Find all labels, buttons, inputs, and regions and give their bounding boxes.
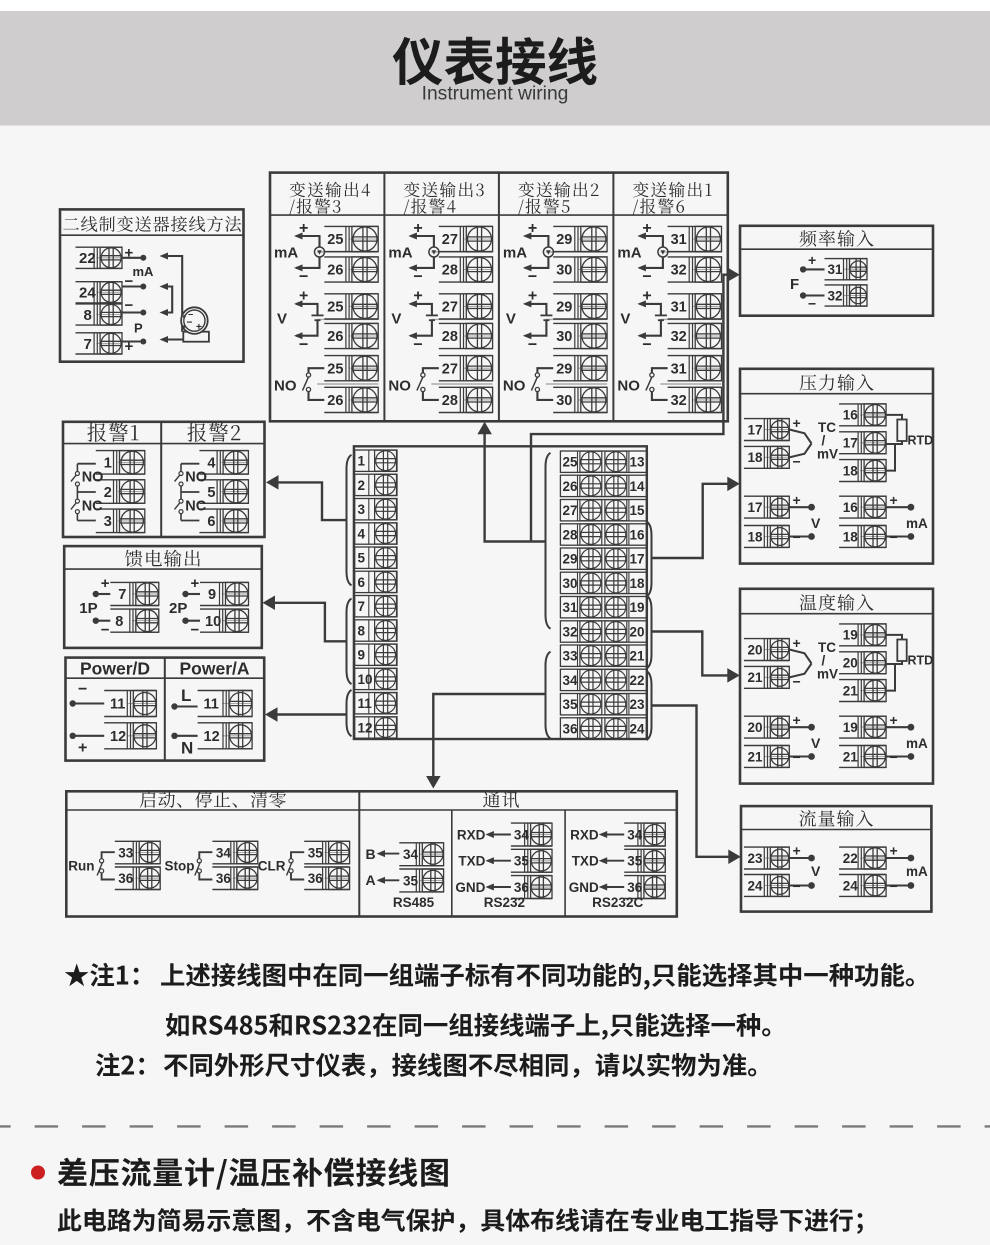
svg-text:B: B [366, 846, 376, 862]
svg-text:Power/A: Power/A [179, 659, 249, 679]
svg-text:mA: mA [133, 264, 155, 279]
svg-text:21: 21 [629, 649, 645, 664]
svg-text:−: − [793, 453, 801, 469]
svg-text:24: 24 [843, 878, 859, 893]
svg-text:11: 11 [204, 697, 219, 713]
svg-text:25: 25 [327, 300, 343, 316]
svg-text:28: 28 [442, 393, 458, 409]
svg-text:34: 34 [563, 673, 579, 688]
svg-text:24: 24 [629, 721, 645, 736]
svg-text:NO: NO [185, 470, 207, 486]
svg-text:2: 2 [358, 478, 366, 493]
svg-text:NO: NO [274, 378, 297, 395]
svg-text:31: 31 [671, 300, 687, 316]
svg-text:5: 5 [207, 485, 215, 501]
svg-text:L: L [181, 686, 191, 705]
svg-text:29: 29 [556, 232, 572, 248]
svg-text:19: 19 [843, 628, 858, 643]
svg-text:−: − [890, 749, 898, 765]
svg-text:5: 5 [358, 551, 366, 566]
svg-text:18: 18 [748, 450, 764, 465]
svg-text:29: 29 [563, 552, 578, 567]
svg-text:14: 14 [629, 479, 645, 494]
svg-text:−: − [890, 529, 898, 545]
svg-text:10: 10 [205, 614, 221, 630]
svg-text:13: 13 [629, 455, 645, 470]
svg-text:Power/D: Power/D [80, 659, 150, 679]
svg-text:32: 32 [828, 288, 843, 303]
svg-text:25: 25 [327, 361, 343, 377]
svg-text:34: 34 [514, 827, 530, 842]
svg-text:4: 4 [358, 526, 366, 541]
svg-text:mA: mA [906, 736, 928, 751]
svg-text:7: 7 [358, 599, 366, 614]
svg-text:−: − [642, 269, 651, 286]
svg-text:−: − [78, 681, 87, 698]
svg-text:−: − [299, 269, 308, 286]
svg-text:V: V [506, 311, 516, 328]
svg-text:+: + [78, 740, 87, 757]
svg-text:31: 31 [671, 232, 687, 248]
svg-text:mA: mA [906, 864, 928, 879]
svg-text:35: 35 [514, 854, 530, 869]
svg-text:1: 1 [104, 456, 112, 472]
svg-text:19: 19 [629, 600, 644, 615]
svg-text:mA: mA [503, 245, 527, 262]
svg-text:−: − [793, 749, 801, 765]
svg-text:V: V [391, 311, 401, 328]
svg-text:26: 26 [563, 479, 579, 494]
svg-text:22: 22 [629, 673, 644, 688]
svg-text:1: 1 [358, 454, 366, 469]
svg-text:−: − [793, 673, 801, 689]
svg-text:21: 21 [748, 749, 764, 764]
svg-text:20: 20 [748, 642, 763, 657]
svg-text:26: 26 [327, 263, 343, 279]
svg-text:18: 18 [843, 529, 859, 544]
svg-text:10: 10 [358, 672, 373, 687]
svg-text:18: 18 [629, 576, 645, 591]
svg-text:4: 4 [207, 456, 215, 472]
svg-text:+: + [793, 415, 801, 431]
svg-text:6: 6 [358, 575, 366, 590]
svg-text:mA: mA [274, 245, 298, 262]
svg-text:31: 31 [563, 600, 579, 615]
svg-text:−: − [191, 622, 200, 639]
svg-text:30: 30 [563, 576, 578, 591]
svg-text:20: 20 [748, 720, 763, 735]
svg-text:30: 30 [556, 329, 572, 345]
svg-text:18: 18 [748, 529, 764, 544]
svg-text:V: V [811, 863, 821, 879]
svg-text:15: 15 [629, 503, 645, 518]
svg-text:V: V [811, 515, 821, 531]
svg-text:27: 27 [442, 361, 458, 377]
svg-text:−: − [299, 337, 308, 354]
svg-text:33: 33 [118, 845, 134, 860]
svg-text:−: − [793, 529, 801, 545]
svg-text:36: 36 [118, 871, 134, 886]
svg-text:RS485: RS485 [393, 895, 435, 910]
svg-text:−: − [413, 337, 422, 354]
svg-text:20: 20 [629, 624, 644, 639]
svg-text:−: − [101, 622, 110, 639]
svg-text:+: + [196, 322, 202, 333]
svg-text:17: 17 [748, 422, 763, 437]
svg-text:11: 11 [110, 697, 125, 713]
svg-text:8: 8 [84, 307, 92, 324]
svg-text:+: + [793, 712, 801, 728]
svg-text:3: 3 [358, 502, 366, 517]
svg-text:RXD: RXD [570, 828, 599, 843]
svg-text:18: 18 [843, 463, 859, 478]
svg-text:36: 36 [627, 880, 643, 895]
svg-text:2: 2 [104, 485, 112, 501]
svg-text:RTD: RTD [908, 433, 934, 447]
svg-text:7: 7 [84, 336, 92, 353]
svg-text:21: 21 [748, 670, 764, 685]
svg-text:+: + [890, 843, 898, 859]
svg-text:−: − [642, 337, 651, 354]
svg-text:2P: 2P [169, 600, 187, 617]
svg-text:mA: mA [388, 245, 412, 262]
svg-text:27: 27 [563, 503, 578, 518]
svg-text:35: 35 [627, 854, 643, 869]
svg-text:22: 22 [79, 250, 96, 267]
svg-text:NO: NO [82, 470, 104, 486]
svg-text:33: 33 [563, 649, 579, 664]
svg-text:12: 12 [110, 729, 126, 745]
svg-text:7: 7 [118, 587, 126, 603]
svg-text:24: 24 [748, 878, 764, 893]
svg-text:V: V [620, 311, 630, 328]
svg-text:Stop: Stop [165, 859, 195, 874]
svg-text:V: V [811, 735, 821, 751]
svg-text:9: 9 [208, 587, 216, 603]
svg-text:RS232C: RS232C [592, 895, 643, 910]
svg-text:N: N [181, 739, 193, 758]
svg-text:11: 11 [358, 696, 373, 711]
svg-text:36: 36 [563, 721, 579, 736]
svg-text:32: 32 [671, 263, 687, 279]
svg-text:F: F [790, 276, 799, 293]
svg-text:−: − [808, 296, 816, 312]
svg-text:22: 22 [843, 851, 858, 866]
svg-text:TXD: TXD [458, 854, 485, 869]
svg-text:+: + [808, 252, 816, 268]
svg-text:23: 23 [748, 851, 764, 866]
svg-text:25: 25 [327, 232, 343, 248]
svg-text:12: 12 [358, 720, 373, 735]
svg-text:12: 12 [204, 729, 220, 745]
svg-text:−: − [890, 878, 898, 894]
svg-text:25: 25 [563, 455, 579, 470]
svg-text:TXD: TXD [572, 854, 599, 869]
svg-text:30: 30 [556, 393, 572, 409]
svg-text:36: 36 [308, 871, 324, 886]
svg-text:+: + [793, 843, 801, 859]
svg-text:−: − [413, 269, 422, 286]
svg-text:+: + [191, 575, 200, 592]
svg-text:16: 16 [629, 527, 645, 542]
svg-text:35: 35 [403, 873, 419, 888]
svg-text:34: 34 [403, 847, 419, 862]
svg-text:NO: NO [503, 378, 526, 395]
svg-text:31: 31 [828, 262, 844, 277]
svg-text:mV: mV [817, 666, 838, 681]
svg-text:34: 34 [216, 845, 232, 860]
svg-text:6: 6 [207, 514, 215, 530]
svg-text:32: 32 [671, 329, 687, 345]
svg-text:mV: mV [817, 446, 838, 461]
svg-text:mA: mA [617, 245, 641, 262]
svg-text:27: 27 [442, 300, 458, 316]
svg-text:20: 20 [843, 656, 858, 671]
svg-text:19: 19 [843, 720, 858, 735]
svg-text:9: 9 [358, 648, 366, 663]
svg-text:mA: mA [906, 516, 928, 531]
svg-text:Run: Run [68, 859, 94, 874]
svg-text:+: + [890, 492, 898, 508]
svg-text:24: 24 [79, 285, 96, 302]
svg-text:V: V [277, 311, 287, 328]
svg-text:29: 29 [556, 361, 572, 377]
svg-text:27: 27 [442, 232, 458, 248]
svg-text:−: − [528, 269, 537, 286]
svg-text:32: 32 [563, 624, 578, 639]
svg-text:34: 34 [627, 827, 643, 842]
svg-text:32: 32 [671, 393, 687, 409]
svg-text:RS232: RS232 [484, 895, 525, 910]
svg-text:21: 21 [843, 683, 859, 698]
svg-text:RXD: RXD [457, 828, 486, 843]
svg-text:26: 26 [327, 329, 343, 345]
svg-text:30: 30 [556, 263, 572, 279]
svg-text:23: 23 [629, 697, 645, 712]
svg-text:16: 16 [843, 408, 859, 423]
svg-text:17: 17 [843, 436, 858, 451]
svg-text:CLR: CLR [258, 859, 286, 874]
svg-text:26: 26 [327, 393, 343, 409]
svg-text:28: 28 [442, 263, 458, 279]
svg-text:16: 16 [843, 500, 859, 515]
svg-text:P: P [134, 321, 143, 336]
svg-text:17: 17 [629, 552, 644, 567]
svg-text:31: 31 [671, 361, 687, 377]
svg-text:NC: NC [82, 499, 103, 515]
svg-text:36: 36 [216, 871, 232, 886]
svg-text:−: − [187, 318, 193, 329]
svg-text:21: 21 [843, 749, 859, 764]
svg-text:+: + [890, 712, 898, 728]
svg-text:+: + [793, 635, 801, 651]
svg-text:35: 35 [308, 845, 324, 860]
svg-text:A: A [366, 872, 376, 888]
svg-text:GND: GND [455, 880, 485, 895]
svg-text:+: + [101, 575, 110, 592]
svg-text:36: 36 [514, 880, 530, 895]
svg-text:1P: 1P [79, 600, 97, 617]
svg-text:8: 8 [358, 623, 366, 638]
svg-text:28: 28 [563, 527, 579, 542]
svg-text:Instrument wiring: Instrument wiring [422, 84, 569, 105]
svg-text:NO: NO [617, 378, 640, 395]
svg-text:35: 35 [563, 697, 579, 712]
svg-text:17: 17 [748, 500, 763, 515]
svg-text:3: 3 [104, 514, 112, 530]
svg-text:29: 29 [556, 300, 572, 316]
svg-text:+: + [793, 492, 801, 508]
svg-text:8: 8 [115, 614, 123, 630]
svg-text:28: 28 [442, 329, 458, 345]
svg-text:−: − [528, 337, 537, 354]
svg-text:NO: NO [388, 378, 411, 395]
svg-text:RTD: RTD [908, 653, 934, 667]
svg-text:−: − [793, 878, 801, 894]
svg-text:NC: NC [185, 499, 206, 515]
svg-text:GND: GND [569, 880, 599, 895]
